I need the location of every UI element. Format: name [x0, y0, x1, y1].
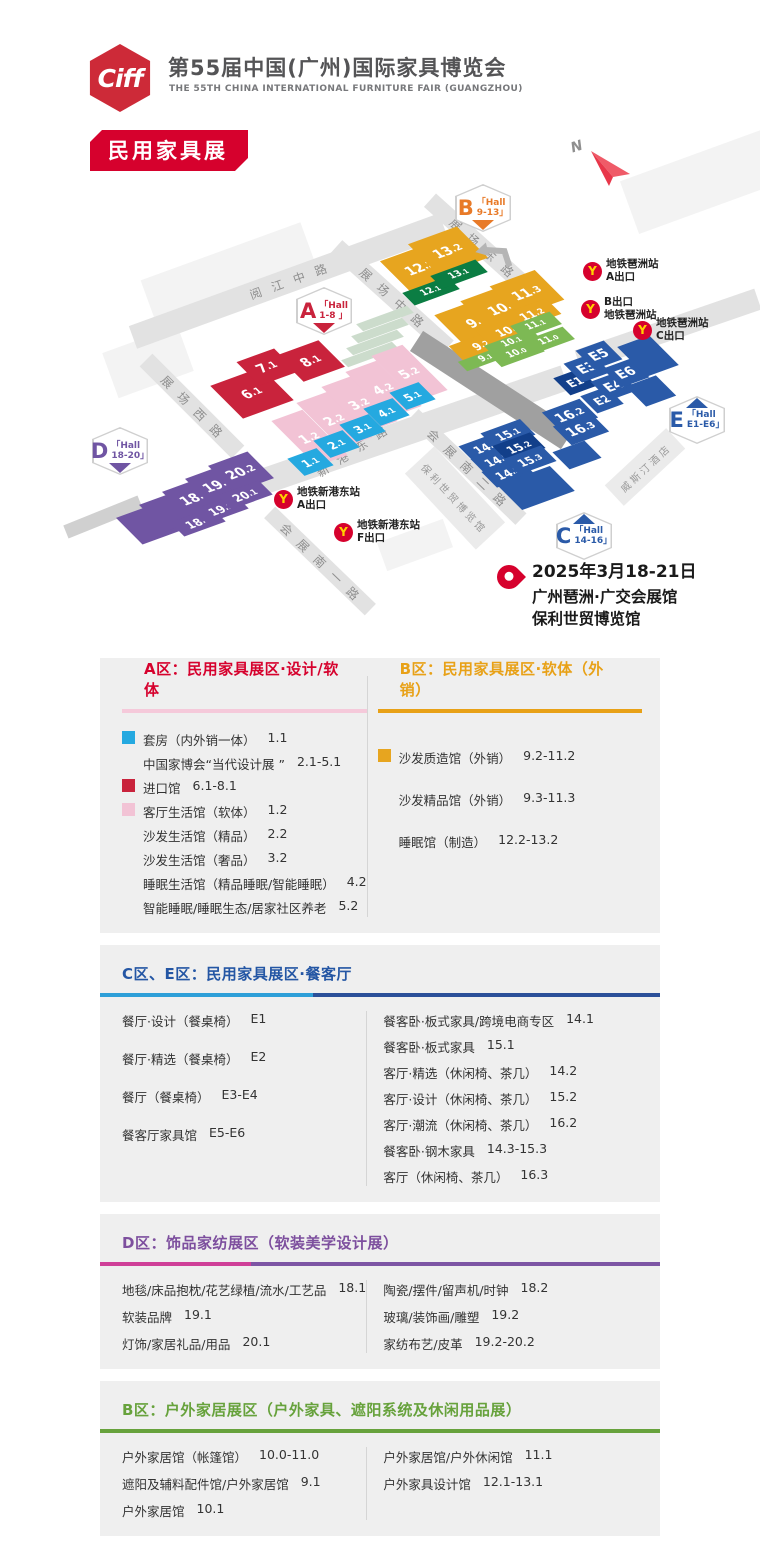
metro-exit-label: 地铁琶洲站A出口: [606, 258, 659, 284]
legend-column: 餐客卧·板式家具/跨境电商专区14.1餐客卧·板式家具15.1客厅·精选（休闲椅…: [366, 1011, 642, 1186]
metro-exit-marker: Y地铁琶洲站A出口: [583, 258, 659, 284]
legend-item-text: 家纺布艺/皮革: [383, 1334, 462, 1353]
underline-segment: [251, 1262, 660, 1266]
legend-item: 餐厅（餐桌椅）E3-E4: [122, 1087, 366, 1106]
legend-item: 睡眠馆（制造）12.2-13.2: [378, 832, 642, 851]
legend-item-text: 沙发精品馆（外销）: [399, 790, 512, 809]
badge-content: A「Hall1-8 」: [296, 287, 352, 335]
legend-item-text: 餐客卧·板式家具/跨境电商专区: [383, 1011, 554, 1030]
section-underline: [100, 993, 660, 997]
legend-item-text: 餐厅·精选（餐桌椅）: [122, 1049, 238, 1068]
legend-item-hall-code: 9.1: [301, 1474, 321, 1489]
legend-item: 户外家居馆10.1: [122, 1501, 366, 1520]
legend-item-text: 客厅（休闲椅、茶几）: [383, 1167, 508, 1186]
legend-item: 软装品牌19.1: [122, 1307, 366, 1326]
section-underline: [378, 709, 642, 713]
legend-column: A区：民用家具展区·设计/软体套房（内外销一体）1.1中国家博会“当代设计展 ”…: [122, 676, 367, 917]
underline-segment: [100, 1262, 251, 1266]
hall-badge-e: E「HallE1-E6」: [669, 396, 725, 444]
legend-item: 中国家博会“当代设计展 ”2.1-5.1: [122, 754, 367, 773]
hall-badge-c: C「Hall14-16」: [556, 512, 612, 560]
legend-item-hall-code: 12.2-13.2: [498, 832, 558, 847]
legend-item-hall-code: 20.1: [242, 1334, 270, 1349]
legend-item-hall-code: 4.2: [347, 874, 367, 889]
badge-hall-range: 「HallE1-E6」: [687, 410, 725, 431]
legend-section-ce: C区、E区：民用家具展区·餐客厅餐厅·设计（餐桌椅）E1餐厅·精选（餐桌椅）E2…: [100, 945, 660, 1202]
legend-color-swatch: [122, 803, 135, 816]
compass-arrow-icon: [588, 148, 632, 192]
legend-item: 户外家具设计馆12.1-13.1: [383, 1474, 642, 1493]
legend-color-swatch: [378, 749, 391, 762]
section-columns: 餐厅·设计（餐桌椅）E1餐厅·精选（餐桌椅）E2餐厅（餐桌椅）E3-E4餐客厅家…: [100, 997, 660, 1202]
legend-item-text: 户外家居馆/户外休闲馆: [383, 1447, 512, 1466]
legend-section-out: B区：户外家居展区（户外家具、遮阳系统及休闲用品展）户外家居馆（帐篷馆）10.0…: [100, 1381, 660, 1536]
legend-item-hall-code: E5-E6: [209, 1125, 245, 1140]
legend-item-text: 户外家居馆（帐篷馆）: [122, 1447, 247, 1466]
legend-item-hall-code: 1.1: [268, 730, 288, 745]
legend-item-text: 户外家具设计馆: [383, 1474, 471, 1493]
event-venue-2: 保利世贸博览馆: [532, 608, 697, 630]
metro-logo-icon: Y: [274, 490, 293, 509]
legend-item-hall-code: 9.2-11.2: [523, 748, 575, 763]
page: { "header":{ "logo":"Ciff", "title_cn":"…: [0, 0, 760, 1291]
legend-item-text: 餐厅（餐桌椅）: [122, 1087, 210, 1106]
legend-item-hall-code: 14.1: [566, 1011, 594, 1026]
legend-section-d: D区：饰品家纺展区（软装美学设计展）地毯/床品抱枕/花艺绿植/流水/工艺品18.…: [100, 1214, 660, 1369]
legend-item: 陶瓷/摆件/留声机/时钟18.2: [383, 1280, 642, 1299]
legend-item: 客厅生活馆（软体）1.2: [122, 802, 367, 821]
badge-content: D「Hall18-20」: [92, 427, 148, 475]
badge-content: E「HallE1-E6」: [669, 396, 725, 444]
legend-item-text: 睡眠馆（制造）: [399, 832, 487, 851]
underline-segment: [100, 993, 313, 997]
legend-color-swatch: [122, 731, 135, 744]
legend-item-text: 套房（内外销一体）: [143, 730, 256, 749]
legend-section-ab: A区：民用家具展区·设计/软体套房（内外销一体）1.1中国家博会“当代设计展 ”…: [100, 658, 660, 933]
building-label: 威斯汀酒店: [616, 439, 674, 494]
metro-exit-marker: Y地铁新港东站F出口: [334, 519, 420, 545]
legend-item-hall-code: 10.0-11.0: [259, 1447, 319, 1462]
legend-item-text: 户外家居馆: [122, 1501, 185, 1520]
legend-item-text: 陶瓷/摆件/留声机/时钟: [383, 1280, 508, 1299]
badge-letter: E: [670, 410, 684, 431]
legend-item-hall-code: 2.2: [268, 826, 288, 841]
underline-segment: [378, 709, 642, 713]
legend-item-hall-code: 16.3: [520, 1167, 548, 1182]
legend-item-hall-code: 1.2: [268, 802, 288, 817]
badge-hall-range: 「Hall14-16」: [574, 526, 612, 547]
legend-item-text: 遮阳及辅料配件馆/户外家居馆: [122, 1474, 289, 1493]
legend-item: 套房（内外销一体）1.1: [122, 730, 367, 749]
legend-item: 餐厅·设计（餐桌椅）E1: [122, 1011, 366, 1030]
legend-item-hall-code: 15.1: [487, 1037, 515, 1052]
legend-item: 餐客卧·钢木家具14.3-15.3: [383, 1141, 642, 1160]
legend-item: 户外家居馆（帐篷馆）10.0-11.0: [122, 1447, 366, 1466]
legend-item-hall-code: E1: [250, 1011, 266, 1026]
badge-letter: B: [458, 198, 474, 219]
metro-exit-label: 地铁新港东站F出口: [357, 519, 420, 545]
underline-segment: [100, 1429, 660, 1433]
badge-hall-range: 「Hall1-8 」: [319, 301, 348, 322]
hall-badge-d: D「Hall18-20」: [92, 427, 148, 475]
legend-item-text: 客厅·潮流（休闲椅、茶几）: [383, 1115, 537, 1134]
column-header: A区：民用家具展区·设计/软体: [122, 658, 367, 713]
legend-item: 客厅·潮流（休闲椅、茶几）16.2: [383, 1115, 642, 1134]
legend-column: 户外家居馆（帐篷馆）10.0-11.0遮阳及辅料配件馆/户外家居馆9.1户外家居…: [122, 1447, 366, 1520]
legend-item: 玻璃/装饰画/雕塑19.2: [383, 1307, 642, 1326]
map-city-block: [620, 130, 760, 234]
legend-item-text: 睡眠生活馆（精品睡眠/智能睡眠）: [143, 874, 335, 893]
section-underline: [100, 1262, 660, 1266]
legend-item: 智能睡眠/睡眠生态/居家社区养老5.2: [122, 898, 367, 917]
metro-logo-icon: Y: [334, 523, 353, 542]
legend-item-hall-code: 9.3-11.3: [523, 790, 575, 805]
legend-item-hall-code: 6.1-8.1: [193, 778, 237, 793]
legend-item-text: 客厅生活馆（软体）: [143, 802, 256, 821]
badge-content: C「Hall14-16」: [556, 512, 612, 560]
section-columns: 地毯/床品抱枕/花艺绿植/流水/工艺品18.1软装品牌19.1灯饰/家居礼品/用…: [100, 1266, 660, 1369]
legend-item-text: 沙发生活馆（精品）: [143, 826, 256, 845]
badge-letter: D: [91, 441, 108, 462]
road-label: 展场西路: [150, 364, 235, 449]
legend-item: 餐厅·精选（餐桌椅）E2: [122, 1049, 366, 1068]
legend-item-text: 玻璃/装饰画/雕塑: [383, 1307, 479, 1326]
metro-logo-icon: Y: [581, 300, 600, 319]
legend-item-text: 进口馆: [143, 778, 181, 797]
hall-badge-b: B「Hall9-13」: [455, 184, 511, 232]
metro-exit-label: 地铁琶洲站C出口: [656, 317, 709, 343]
legend-column: 户外家居馆/户外休闲馆11.1户外家具设计馆12.1-13.1: [366, 1447, 642, 1520]
legend-item: 沙发生活馆（奢品）3.2: [122, 850, 367, 869]
legend-item-text: 客厅·设计（休闲椅、茶几）: [383, 1089, 537, 1108]
section-title: B区：民用家具展区·软体（外销）: [378, 658, 642, 709]
legend-item: 睡眠生活馆（精品睡眠/智能睡眠）4.2: [122, 874, 367, 893]
legend-item: 客厅·设计（休闲椅、茶几）15.2: [383, 1089, 642, 1108]
metro-exit-marker: Y地铁新港东站A出口: [274, 486, 360, 512]
event-location-block: 2025年3月18-21日 广州琶洲·广交会展馆 保利世贸博览馆: [532, 557, 697, 631]
legend-item-hall-code: 14.2: [549, 1063, 577, 1078]
legend-item-hall-code: 11.1: [525, 1447, 553, 1462]
legend-item: 遮阳及辅料配件馆/户外家居馆9.1: [122, 1474, 366, 1493]
legend-item: 地毯/床品抱枕/花艺绿植/流水/工艺品18.1: [122, 1280, 366, 1299]
legend-item: 进口馆6.1-8.1: [122, 778, 367, 797]
legend-item-hall-code: 19.2-20.2: [475, 1334, 535, 1349]
section-underline: [122, 709, 367, 713]
legend-item-hall-code: 15.2: [549, 1089, 577, 1104]
legend-item-hall-code: E3-E4: [222, 1087, 258, 1102]
legend-item-hall-code: 14.3-15.3: [487, 1141, 547, 1156]
legend-column: B区：民用家具展区·软体（外销）沙发质造馆（外销）9.2-11.2沙发精品馆（外…: [367, 676, 642, 917]
legend-item-hall-code: 19.1: [184, 1307, 212, 1322]
legend-item-hall-code: 5.2: [338, 898, 358, 913]
badge-letter: C: [556, 526, 571, 547]
metro-exit-marker: Y地铁琶洲站C出口: [633, 317, 709, 343]
hall-badge-a: A「Hall1-8 」: [296, 287, 352, 335]
underline-segment: [122, 709, 367, 713]
legend-column: 餐厅·设计（餐桌椅）E1餐厅·精选（餐桌椅）E2餐厅（餐桌椅）E3-E4餐客厅家…: [122, 1011, 366, 1186]
legend-item: 餐客卧·板式家具15.1: [383, 1037, 642, 1056]
column-header: B区：民用家具展区·软体（外销）: [378, 658, 642, 713]
section-title: C区、E区：民用家具展区·餐客厅: [100, 963, 660, 993]
legend-item-text: 软装品牌: [122, 1307, 172, 1326]
legend-item: 客厅（休闲椅、茶几）16.3: [383, 1167, 642, 1186]
legend-item: 沙发质造馆（外销）9.2-11.2: [378, 748, 642, 767]
section-columns: 户外家居馆（帐篷馆）10.0-11.0遮阳及辅料配件馆/户外家居馆9.1户外家居…: [100, 1433, 660, 1536]
legend-item-hall-code: 18.2: [521, 1280, 549, 1295]
legend-color-swatch: [122, 779, 135, 792]
legend-item-text: 餐客厅家具馆: [122, 1125, 197, 1144]
badge-content: B「Hall9-13」: [455, 184, 511, 232]
legend-item-text: 智能睡眠/睡眠生态/居家社区养老: [143, 898, 326, 917]
event-venue-1: 广州琶洲·广交会展馆: [532, 586, 697, 608]
legend-item: 灯饰/家居礼品/用品20.1: [122, 1334, 366, 1353]
badge-letter: A: [300, 301, 316, 322]
legend-item-hall-code: 10.1: [197, 1501, 225, 1516]
legend-item-hall-code: 12.1-13.1: [483, 1474, 543, 1489]
legend-item-text: 餐客卧·板式家具: [383, 1037, 474, 1056]
legend-item: 餐客厅家具馆E5-E6: [122, 1125, 366, 1144]
section-underline: [100, 1429, 660, 1433]
legend-item-hall-code: 16.2: [549, 1115, 577, 1130]
legend-item-hall-code: 19.2: [491, 1307, 519, 1322]
legend-item-text: 客厅·精选（休闲椅、茶几）: [383, 1063, 537, 1082]
legend-item-hall-code: 18.1: [338, 1280, 366, 1295]
underline-segment: [313, 993, 660, 997]
legend-item-text: 中国家博会“当代设计展 ”: [143, 754, 285, 773]
metro-logo-icon: Y: [583, 262, 602, 281]
legend-item-hall-code: 2.1-5.1: [297, 754, 341, 769]
legend-item-text: 餐客卧·钢木家具: [383, 1141, 474, 1160]
legend-item-text: 餐厅·设计（餐桌椅）: [122, 1011, 238, 1030]
legend-item: 家纺布艺/皮革19.2-20.2: [383, 1334, 642, 1353]
metro-exit-label: 地铁新港东站A出口: [297, 486, 360, 512]
legend-item-text: 沙发质造馆（外销）: [399, 748, 512, 767]
legend-item: 户外家居馆/户外休闲馆11.1: [383, 1447, 642, 1466]
section-title: A区：民用家具展区·设计/软体: [122, 658, 367, 709]
event-date: 2025年3月18-21日: [532, 557, 697, 582]
metro-logo-icon: Y: [633, 321, 652, 340]
legend-item: 餐客卧·板式家具/跨境电商专区14.1: [383, 1011, 642, 1030]
section-title: B区：户外家居展区（户外家具、遮阳系统及休闲用品展）: [100, 1399, 660, 1429]
legend-item-text: 沙发生活馆（奢品）: [143, 850, 256, 869]
legend-item-hall-code: E2: [250, 1049, 266, 1064]
badge-hall-range: 「Hall18-20」: [111, 441, 149, 462]
section-columns: A区：民用家具展区·设计/软体套房（内外销一体）1.1中国家博会“当代设计展 ”…: [100, 676, 660, 933]
legend-item-text: 灯饰/家居礼品/用品: [122, 1334, 230, 1353]
legend: A区：民用家具展区·设计/软体套房（内外销一体）1.1中国家博会“当代设计展 ”…: [100, 658, 660, 1548]
legend-item-hall-code: 3.2: [268, 850, 288, 865]
section-title: D区：饰品家纺展区（软装美学设计展）: [100, 1232, 660, 1262]
legend-item: 沙发生活馆（精品）2.2: [122, 826, 367, 845]
badge-hall-range: 「Hall9-13」: [477, 198, 509, 219]
legend-item: 沙发精品馆（外销）9.3-11.3: [378, 790, 642, 809]
legend-item-text: 地毯/床品抱枕/花艺绿植/流水/工艺品: [122, 1280, 326, 1299]
legend-item: 客厅·精选（休闲椅、茶几）14.2: [383, 1063, 642, 1082]
